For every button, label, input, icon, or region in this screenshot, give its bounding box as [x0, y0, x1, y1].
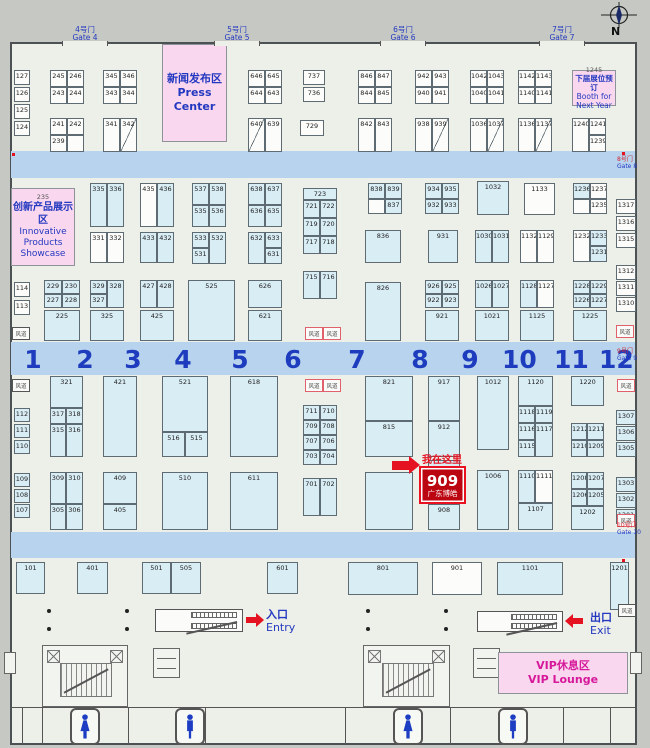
booth-336: 336 [107, 183, 124, 227]
exit-label-en: Exit [590, 624, 612, 637]
booth-405: 405 [103, 504, 137, 530]
booth-1220: 1220 [571, 376, 604, 406]
corridor-divider [205, 707, 206, 745]
booth-1211: 1211 [587, 423, 604, 440]
booth-1032: 1032 [477, 181, 509, 215]
booth-942: 942 [415, 70, 432, 87]
corridor-divider [42, 707, 43, 745]
booth-723: 723 [303, 188, 337, 200]
aisle-number-10: 10 [502, 345, 528, 374]
column-dot [125, 627, 129, 631]
aisle-band-top [11, 151, 635, 178]
next-year-booking-area: 1245 下届展位预订 Booth for Next Year [572, 70, 616, 106]
booth-1237: 1237 [590, 183, 607, 199]
booth-1133: 1133 [524, 183, 555, 215]
booth-342: 342 [120, 118, 137, 152]
booth-125: 125 [14, 104, 30, 119]
booth-245: 245 [50, 70, 67, 87]
booth-632: 632 [248, 232, 265, 264]
booth-931: 931 [428, 230, 458, 263]
booth-242: 242 [67, 118, 84, 135]
booth-1236: 1236 [573, 183, 590, 199]
booth-229: 229 [44, 280, 62, 294]
innovation-label-en2: Showcase [21, 249, 66, 260]
next-year-label-en2: Next Year [576, 101, 612, 110]
booth-505: 505 [171, 562, 201, 594]
booth-1012: 1012 [477, 376, 509, 450]
booth-1307: 1307 [616, 410, 636, 425]
corridor-divider [345, 707, 346, 745]
vip-lounge-label-cn: VIP休息区 [536, 659, 590, 673]
booth-525: 525 [188, 280, 235, 341]
gate-label-gate-9: 9号门Gate 9 [617, 348, 650, 362]
booth-309: 309 [50, 472, 66, 504]
booth-1240: 1240 [572, 118, 589, 152]
band-red-mark [622, 559, 625, 562]
booth-1037: 1037 [487, 118, 504, 152]
booth-318: 318 [66, 408, 83, 424]
booth-428: 428 [157, 280, 174, 308]
booth-636: 636 [248, 205, 265, 227]
booth-1235: 1235 [590, 199, 607, 214]
compass-north-label: N [611, 25, 620, 38]
booth-836: 836 [365, 230, 401, 263]
booth-1317: 1317 [616, 199, 636, 214]
booth-845: 845 [375, 87, 392, 104]
highlighted-booth-company: 广东博皓 [428, 489, 458, 498]
next-year-label-cn: 下届展位预订 [573, 74, 615, 92]
booth-721: 721 [303, 200, 320, 218]
service-box [630, 652, 642, 674]
booth-1233: 1233 [590, 230, 607, 246]
booth-1036: 1036 [470, 118, 487, 152]
booth-1041: 1041 [487, 87, 504, 104]
booth-325: 325 [90, 310, 124, 341]
booth-537: 537 [192, 183, 209, 205]
aisle-number-5: 5 [227, 345, 253, 374]
booth-933: 933 [442, 199, 459, 214]
booth-938: 938 [415, 118, 432, 152]
booth-1206: 1206 [571, 489, 587, 506]
booth-306: 306 [66, 504, 83, 530]
booth-108: 108 [14, 489, 30, 503]
innovation-area-number: 235 [37, 194, 49, 201]
restroom-female-icon [70, 708, 100, 745]
elevator [473, 648, 500, 678]
booth-847: 847 [375, 70, 392, 87]
gate-label-gate-7: 7号门Gate 7 [532, 26, 592, 42]
booth-1202: 1202 [571, 506, 604, 530]
booth-1143: 1143 [535, 70, 552, 87]
booth-1136: 1136 [518, 118, 535, 152]
booth-cell [573, 199, 590, 214]
gate-label-gate-6: 6号门Gate 6 [373, 26, 433, 42]
booth-1302: 1302 [616, 493, 636, 508]
booth-722: 722 [320, 200, 337, 218]
booth-839: 839 [385, 183, 402, 199]
booth-1129: 1129 [537, 230, 554, 263]
booth-425: 425 [140, 310, 174, 341]
band-red-mark [622, 152, 625, 155]
air-duct-box: 风道 [618, 604, 636, 617]
corridor-divider [563, 707, 564, 745]
booth-626: 626 [248, 280, 282, 308]
booth-701: 701 [303, 478, 320, 516]
booth-631: 631 [265, 248, 282, 264]
booth-228: 228 [62, 294, 80, 308]
entry-label-en: Entry [266, 621, 295, 634]
booth-531: 531 [192, 248, 209, 264]
aisle-number-11: 11 [554, 345, 580, 374]
booth-510: 510 [162, 472, 208, 530]
booth-305: 305 [50, 504, 66, 530]
next-year-label-en1: Booth for [577, 92, 612, 101]
corridor-line [10, 707, 637, 708]
booth-843: 843 [375, 118, 392, 152]
innovation-label-cn: 创新产品展示区 [12, 201, 74, 227]
vip-lounge-area: VIP休息区 VIP Lounge [498, 652, 628, 694]
booth-644: 644 [248, 87, 265, 104]
booth-711: 711 [303, 405, 320, 420]
booth-709: 709 [303, 420, 320, 435]
press-center-label-en: Press Center [163, 86, 226, 114]
booth-646: 646 [248, 70, 265, 87]
booth-719: 719 [303, 218, 320, 236]
air-duct-box: 风道 [12, 379, 30, 392]
booth-421: 421 [103, 376, 137, 457]
booth-1111: 1111 [535, 470, 553, 503]
booth-1116: 1116 [518, 423, 535, 440]
restroom-female-icon [393, 708, 423, 745]
booth-1225: 1225 [573, 310, 607, 341]
booth-923: 923 [442, 294, 459, 308]
booth-922: 922 [425, 294, 442, 308]
booth-315: 315 [50, 424, 66, 457]
booth-432: 432 [157, 232, 174, 263]
booth-708: 708 [320, 420, 337, 435]
stairwell [42, 645, 128, 707]
booth-1142: 1142 [518, 70, 535, 87]
column-dot [47, 609, 51, 613]
column-dot [125, 609, 129, 613]
booth-110: 110 [14, 440, 30, 454]
booth-716: 716 [320, 271, 337, 299]
booth-707: 707 [303, 435, 320, 450]
booth-1132: 1132 [520, 230, 537, 263]
booth-433: 433 [140, 232, 157, 263]
booth-1310: 1310 [616, 297, 636, 312]
booth-538: 538 [209, 183, 226, 205]
booth-703: 703 [303, 450, 320, 465]
booth-239: 239 [50, 135, 67, 152]
booth-801: 801 [348, 562, 418, 595]
booth-401: 401 [77, 562, 108, 594]
booth-846: 846 [358, 70, 375, 87]
vip-lounge-label-en: VIP Lounge [528, 673, 598, 687]
band-red-mark [12, 153, 15, 156]
booth-1226: 1226 [573, 294, 590, 308]
air-duct-box: 风道 [323, 327, 341, 340]
restroom-male-icon [175, 708, 205, 745]
exit-escalator [477, 611, 563, 632]
air-duct-box: 风道 [323, 379, 341, 392]
booth-1205: 1205 [587, 489, 604, 506]
booth-838: 838 [368, 183, 385, 199]
booth-532: 532 [209, 232, 226, 264]
booth-715: 715 [303, 271, 320, 299]
booth-621: 621 [248, 310, 282, 341]
booth-821: 821 [365, 376, 413, 421]
booth-501: 501 [142, 562, 171, 594]
column-dot [366, 609, 370, 613]
booth-1120: 1120 [518, 376, 553, 406]
booth-941: 941 [432, 87, 449, 104]
booth-1227: 1227 [590, 294, 607, 308]
booth-327: 327 [90, 294, 107, 308]
booth-1140: 1140 [518, 87, 535, 104]
booth-310: 310 [66, 472, 83, 504]
next-year-area-number: 1245 [586, 67, 603, 74]
booth-618: 618 [230, 376, 278, 457]
column-dot [47, 627, 51, 631]
booth-225: 225 [44, 310, 80, 341]
booth-328: 328 [107, 280, 124, 308]
booth-1212: 1212 [571, 423, 587, 440]
booth-521: 521 [162, 376, 208, 432]
innovation-showcase-area: 235 创新产品展示区 Innovative Products Showcase [11, 188, 75, 266]
booth-536: 536 [209, 205, 226, 227]
booth-243: 243 [50, 87, 67, 104]
booth-921: 921 [425, 310, 459, 341]
booth-729: 729 [300, 120, 324, 136]
booth-640: 640 [248, 118, 265, 152]
aisle-number-9: 9 [457, 345, 483, 374]
booth-1207: 1207 [587, 472, 604, 489]
booth-643: 643 [265, 87, 282, 104]
booth-718: 718 [320, 236, 337, 254]
booth-344: 344 [120, 87, 137, 104]
gate-label-gate-5: 5号门Gate 5 [207, 26, 267, 42]
booth-1312: 1312 [616, 265, 636, 280]
booth-1127: 1127 [537, 280, 554, 308]
booth-107: 107 [14, 504, 30, 518]
booth-720: 720 [320, 218, 337, 236]
booth-321: 321 [50, 376, 83, 408]
booth-837: 837 [385, 199, 402, 214]
booth-124: 124 [14, 121, 30, 136]
aisle-band-bottom [11, 532, 635, 558]
booth-1201: 1201 [610, 562, 629, 610]
booth-1208: 1208 [571, 472, 587, 489]
booth-1125: 1125 [520, 310, 554, 341]
booth-925: 925 [442, 280, 459, 294]
booth-127: 127 [14, 70, 30, 85]
column-dot [444, 609, 448, 613]
booth-704: 704 [320, 450, 337, 465]
aisle-number-1: 1 [20, 345, 46, 374]
booth-345: 345 [103, 70, 120, 87]
booth-717: 717 [303, 236, 320, 254]
booth-1306: 1306 [616, 426, 636, 441]
booth-435: 435 [140, 183, 157, 227]
booth-101: 101 [16, 562, 45, 594]
restroom-male-icon [498, 708, 528, 745]
booth-637: 637 [265, 183, 282, 205]
booth-1303: 1303 [616, 477, 636, 492]
aisle-number-8: 8 [407, 345, 433, 374]
exit-label-cn: 出口 [590, 611, 612, 624]
aisle-number-7: 7 [344, 345, 370, 374]
booth-1117: 1117 [535, 423, 553, 457]
booth-533: 533 [192, 232, 209, 248]
booth-1137: 1137 [535, 118, 552, 152]
booth-1232: 1232 [573, 230, 590, 262]
corridor-divider [128, 707, 129, 745]
booth-1031: 1031 [492, 230, 509, 263]
you-are-here-label: 我在这里 [413, 451, 471, 466]
booth-1043: 1043 [487, 70, 504, 87]
air-duct-box: 风道 [616, 325, 634, 338]
booth-908: 908 [428, 504, 460, 530]
booth-1209: 1209 [587, 440, 604, 457]
service-box [4, 652, 16, 674]
booth-1110: 1110 [518, 470, 535, 503]
aisle-number-4: 4 [170, 345, 196, 374]
corridor-divider [610, 707, 611, 745]
booth-935: 935 [442, 183, 459, 199]
booth-516: 516 [162, 432, 185, 457]
booth-635: 635 [265, 205, 282, 227]
booth-1316: 1316 [616, 216, 636, 231]
booth-1042: 1042 [470, 70, 487, 87]
booth-109: 109 [14, 473, 30, 487]
booth-706: 706 [320, 435, 337, 450]
booth-112: 112 [14, 408, 30, 422]
booth-633: 633 [265, 232, 282, 248]
entry-label: 入口 Entry [266, 608, 295, 634]
exit-arrow-icon [573, 618, 583, 624]
aisle-number-2: 2 [72, 345, 98, 374]
booth-343: 343 [103, 87, 120, 104]
booth-943: 943 [432, 70, 449, 87]
booth-1040: 1040 [470, 87, 487, 104]
gate-label-gate-10: 10号门Gate 10 [617, 522, 650, 536]
booth-1241: 1241 [589, 118, 606, 135]
booth-1231: 1231 [590, 246, 607, 262]
exhibition-floor-plan: 新闻发布区 Press Center 235 创新产品展示区 Innovativ… [0, 0, 650, 748]
booth-335: 335 [90, 183, 107, 227]
booth-611: 611 [230, 472, 278, 530]
booth-601: 601 [267, 562, 298, 594]
booth-844: 844 [358, 87, 375, 104]
booth-932: 932 [425, 199, 442, 214]
aisle-band-middle [11, 342, 635, 375]
booth-1311: 1311 [616, 281, 636, 296]
booth-331: 331 [90, 232, 107, 263]
booth-1026: 1026 [475, 280, 492, 308]
innovation-label-en1: Innovative Products [12, 227, 74, 249]
booth-1119: 1119 [535, 406, 553, 423]
booth-1239: 1239 [589, 135, 606, 152]
booth-1128: 1128 [520, 280, 537, 308]
booth-815: 815 [365, 421, 413, 457]
booth-1228: 1228 [573, 280, 590, 294]
booth-1030: 1030 [475, 230, 492, 263]
press-center-label-cn: 新闻发布区 [167, 72, 222, 86]
booth-1305: 1305 [616, 442, 636, 457]
entry-label-cn: 入口 [266, 608, 295, 621]
aisle-number-3: 3 [120, 345, 146, 374]
aisle-number-6: 6 [280, 345, 306, 374]
booth-1115: 1115 [518, 440, 535, 457]
booth-1006: 1006 [477, 470, 509, 530]
booth-842: 842 [358, 118, 375, 152]
booth-332: 332 [107, 232, 124, 263]
gate-label-gate-8: 8号门Gate 8 [617, 156, 650, 170]
booth-113: 113 [14, 300, 30, 315]
booth-535: 535 [192, 205, 209, 227]
highlighted-booth-909: 909 广东博皓 [419, 466, 466, 504]
booth-1315: 1315 [616, 233, 636, 248]
air-duct-box: 风道 [305, 327, 323, 340]
gate-label-gate-4: 4号门Gate 4 [55, 26, 115, 42]
booth-409: 409 [103, 472, 137, 504]
exit-label: 出口 Exit [590, 611, 612, 637]
booth-cell [67, 135, 84, 152]
corridor-divider [22, 707, 23, 745]
booth-826: 826 [365, 282, 401, 341]
booth-cell [368, 199, 385, 214]
booth-702: 702 [320, 478, 337, 516]
booth-126: 126 [14, 87, 30, 102]
booth-737: 737 [303, 70, 325, 85]
booth-1107: 1107 [518, 503, 553, 530]
booth-901: 901 [432, 562, 482, 595]
booth-244: 244 [67, 87, 84, 104]
booth-917: 917 [428, 376, 460, 421]
booth-316: 316 [66, 424, 83, 457]
booth-1118: 1118 [518, 406, 535, 423]
booth-436: 436 [157, 183, 174, 227]
booth-934: 934 [425, 183, 442, 199]
booth-940: 940 [415, 87, 432, 104]
booth-1027: 1027 [492, 280, 509, 308]
booth-1229: 1229 [590, 280, 607, 294]
booth-710: 710 [320, 405, 337, 420]
booth-1141: 1141 [535, 87, 552, 104]
booth-1101: 1101 [497, 562, 563, 595]
corridor-divider [450, 707, 451, 745]
column-dot [366, 627, 370, 631]
booth-230: 230 [62, 280, 80, 294]
booth-926: 926 [425, 280, 442, 294]
booth-241: 241 [50, 118, 67, 135]
booth-111: 111 [14, 424, 30, 438]
booth-1210: 1210 [571, 440, 587, 457]
entry-escalator [155, 609, 243, 632]
column-dot [444, 627, 448, 631]
booth-cell [365, 472, 413, 530]
you-are-here-arrow-icon [392, 461, 409, 470]
booth-515: 515 [185, 432, 208, 457]
booth-246: 246 [67, 70, 84, 87]
air-duct-box: 风道 [305, 379, 323, 392]
booth-329: 329 [90, 280, 107, 294]
stairwell [363, 645, 450, 707]
booth-939: 939 [432, 118, 449, 152]
booth-639: 639 [265, 118, 282, 152]
booth-736: 736 [303, 87, 325, 102]
